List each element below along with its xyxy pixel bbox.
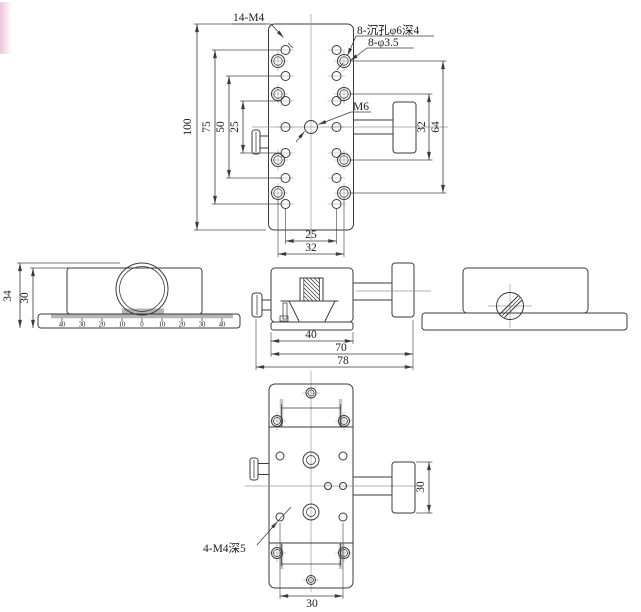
annotation-14-m4: 14-M4	[232, 12, 293, 48]
section-hatching	[268, 272, 360, 312]
screen-edge-artifact	[0, 2, 12, 54]
drive-knob-front	[354, 263, 432, 317]
translation-stage-drawing: 100 75 50 25 25 32 32 64 14-M4 8-沉孔φ6深4 …	[0, 0, 641, 612]
scale-number: 30	[79, 322, 86, 329]
lock-knob-top	[252, 130, 269, 154]
dovetail-profile	[280, 301, 338, 321]
side-body	[67, 268, 202, 314]
scale-number: 40	[219, 322, 226, 329]
scale-number: 20	[99, 322, 106, 329]
drive-knob-bottom	[354, 462, 416, 513]
dim-32-right-text: 32	[416, 121, 428, 133]
svg-text:4-M4深5: 4-M4深5	[203, 541, 246, 555]
front-view: 40 70 78	[252, 263, 431, 370]
top-view: 100 75 50 25 25 32 32 64 14-M4 8-沉孔φ6深4 …	[182, 12, 448, 257]
lock-knob-front	[252, 293, 271, 317]
dim-40-text: 40	[305, 329, 317, 341]
side-view-right	[422, 268, 627, 330]
dim-25-cols-text: 25	[305, 229, 317, 241]
annotation-through-hole: 8-φ3.5	[351, 37, 415, 61]
dim-25v-text: 25	[229, 121, 241, 133]
dim-30-body-text: 30	[19, 292, 31, 304]
right-base	[422, 313, 627, 330]
bottom-view: 30 30 4-M4深5	[203, 371, 433, 610]
scale-number: 40	[59, 322, 66, 329]
lock-knob-bottom	[250, 458, 269, 480]
cad-drawing-page: 100 75 50 25 25 32 32 64 14-M4 8-沉孔φ6深4 …	[0, 0, 641, 612]
dim-knob-30-text: 30	[415, 481, 427, 493]
dim-holes-30-text: 30	[306, 598, 318, 610]
dim-100-text: 100	[182, 118, 194, 136]
dim-32-cols-text: 32	[305, 242, 317, 254]
scale-number: 10	[159, 322, 166, 329]
dial-knob-inner	[120, 267, 165, 312]
vernier-plate-edge	[283, 303, 287, 319]
linear-scale: 40302010010203040	[52, 314, 232, 329]
dim-75-text: 75	[201, 121, 213, 133]
side-view-left: 40302010010203040 34 30	[2, 263, 240, 329]
dial-knob-outer	[116, 263, 168, 315]
scale-number: 30	[199, 322, 206, 329]
scale-number: 0	[140, 322, 144, 329]
dim-50-text: 50	[215, 121, 227, 133]
dim-70-text: 70	[335, 342, 347, 354]
scale-number: 10	[119, 322, 126, 329]
vernier-scale	[123, 309, 163, 315]
screw-slash	[492, 288, 530, 326]
svg-text:M6: M6	[353, 101, 369, 113]
scale-number: 20	[179, 322, 186, 329]
svg-text:14-M4: 14-M4	[233, 12, 265, 24]
svg-text:8-φ3.5: 8-φ3.5	[368, 37, 399, 49]
dim-64-right-text: 64	[430, 121, 442, 133]
dim-78-text: 78	[337, 355, 349, 367]
dim-34-text: 34	[2, 290, 14, 302]
svg-text:8-沉孔φ6深4: 8-沉孔φ6深4	[357, 23, 419, 37]
